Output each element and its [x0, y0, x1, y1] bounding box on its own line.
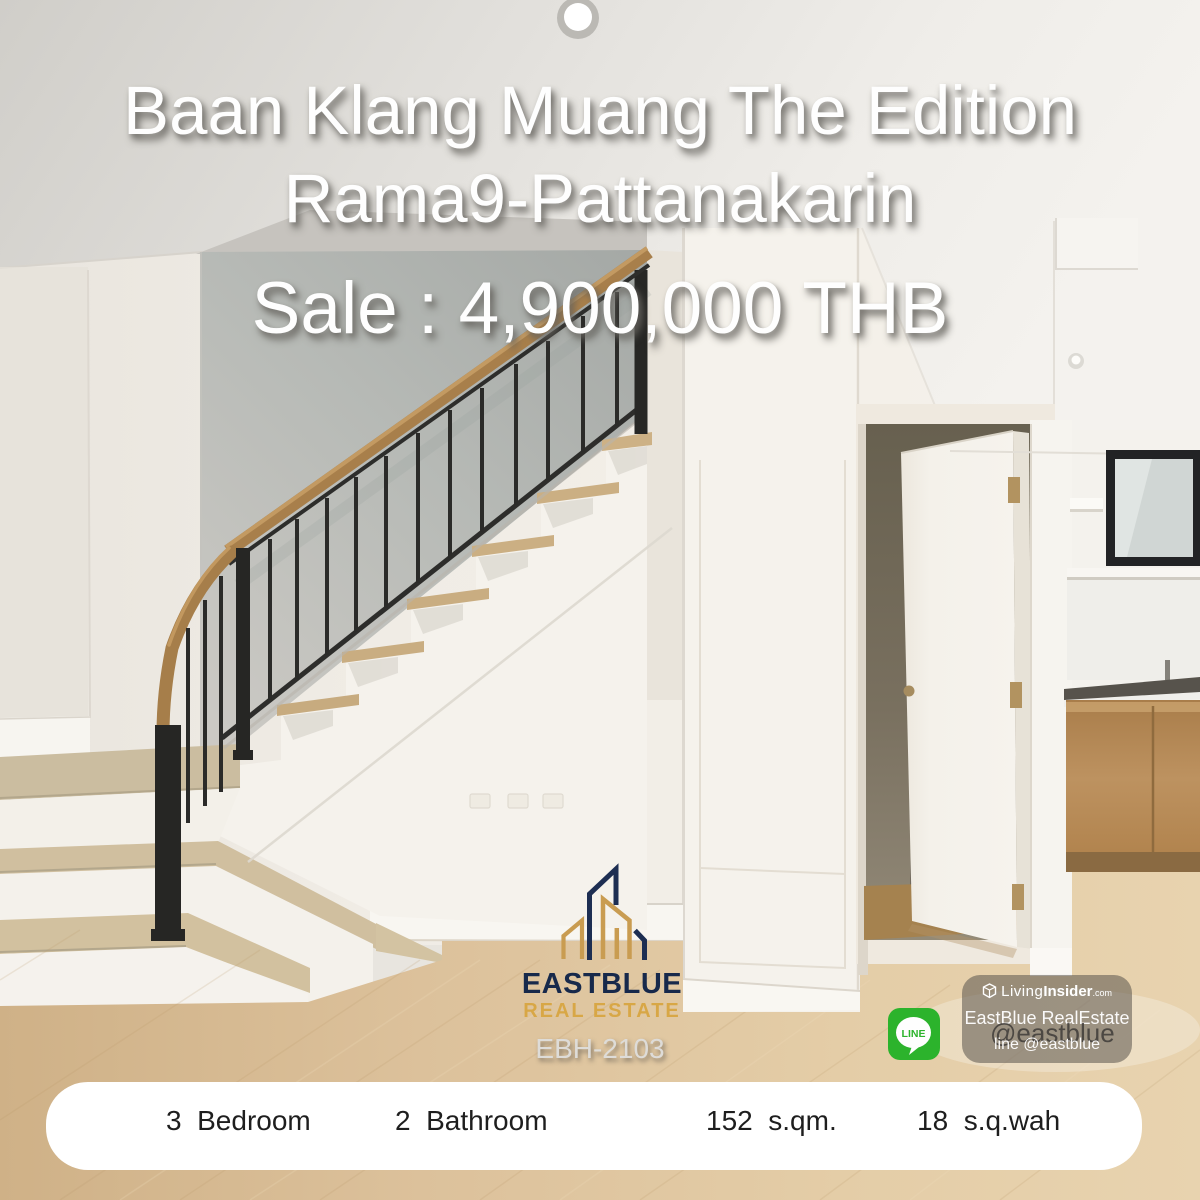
svg-text:LINE: LINE [902, 1028, 926, 1040]
